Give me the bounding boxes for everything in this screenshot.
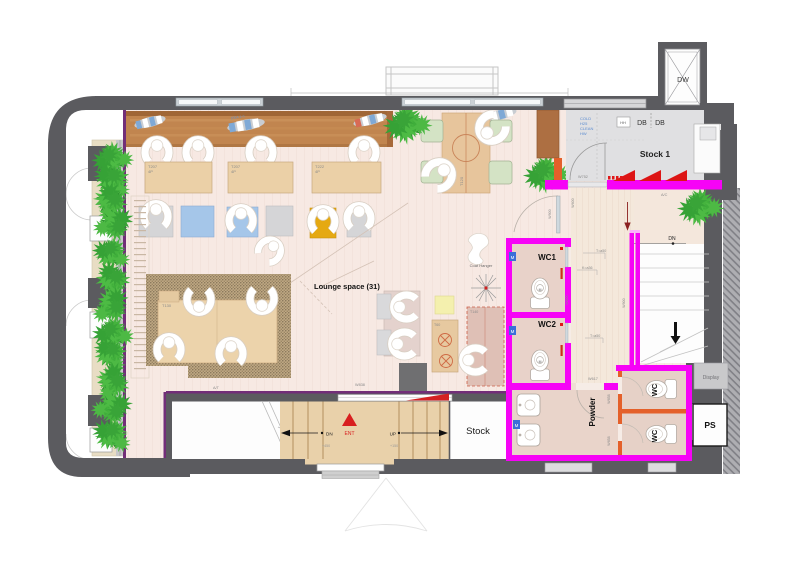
svg-text:M: M (539, 360, 542, 364)
svg-text:T=a50: T=a50 (596, 249, 606, 253)
svg-text:W752: W752 (578, 175, 588, 179)
svg-text:+150: +150 (390, 444, 398, 448)
svg-text:HW: HW (580, 131, 587, 136)
svg-text:W617: W617 (588, 377, 598, 381)
svg-text:W658: W658 (607, 394, 611, 403)
svg-text:W600: W600 (565, 295, 569, 304)
svg-text:W658: W658 (607, 436, 611, 445)
svg-text:M: M (511, 329, 515, 334)
svg-text:W600: W600 (571, 198, 575, 207)
svg-text:Stock: Stock (466, 426, 490, 437)
svg-text:WC: WC (650, 429, 659, 442)
svg-text:Stock 1: Stock 1 (640, 149, 671, 159)
svg-text:A/C: A/C (661, 193, 668, 197)
svg-text:T120: T120 (459, 176, 464, 186)
svg-text:T130: T130 (162, 303, 172, 308)
svg-text:DW: DW (677, 77, 689, 84)
svg-text:WC: WC (650, 383, 659, 396)
svg-text:W900: W900 (548, 209, 552, 218)
svg-text:Lounge space (31): Lounge space (31) (314, 282, 380, 291)
svg-text:M: M (515, 423, 519, 428)
svg-text:M: M (539, 288, 542, 292)
svg-text:W900: W900 (622, 298, 626, 307)
svg-text:T140: T140 (470, 310, 478, 314)
svg-text:T60: T60 (434, 323, 440, 327)
svg-text:DN: DN (326, 432, 333, 437)
svg-text:4P: 4P (231, 169, 236, 174)
svg-text:WC2: WC2 (538, 320, 556, 329)
svg-text:WC1: WC1 (538, 253, 556, 262)
svg-text:T=a50: T=a50 (590, 334, 600, 338)
svg-text:K=a36: K=a36 (582, 266, 593, 270)
svg-text:UP: UP (390, 432, 396, 437)
svg-text:HH: HH (620, 120, 626, 125)
svg-text:4P: 4P (315, 169, 320, 174)
svg-text:ENT: ENT (345, 431, 355, 437)
svg-text:Display: Display (703, 375, 720, 381)
svg-text:Coat Hanger: Coat Hanger (470, 263, 493, 268)
svg-text:M: M (511, 255, 515, 260)
svg-text:PS: PS (704, 420, 716, 430)
svg-text:DB: DB (637, 120, 647, 127)
svg-text:4P: 4P (148, 169, 153, 174)
svg-text:W838: W838 (355, 383, 365, 387)
svg-text:DN: DN (668, 236, 676, 242)
svg-text:Powder: Powder (588, 398, 597, 427)
svg-text:+450: +450 (322, 444, 330, 448)
svg-text:A/T: A/T (213, 386, 220, 390)
svg-text:DB: DB (655, 120, 665, 127)
